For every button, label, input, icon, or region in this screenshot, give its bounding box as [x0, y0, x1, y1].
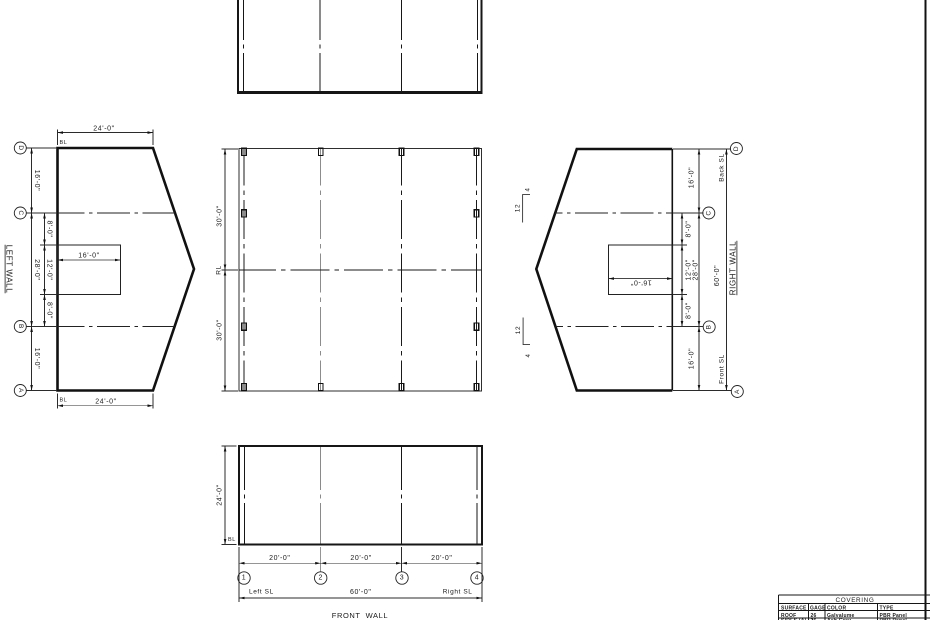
svg-text:FRONT WALL: FRONT WALL: [332, 611, 388, 620]
svg-text:12'-0": 12'-0": [686, 259, 693, 280]
svg-text:D: D: [733, 146, 740, 151]
svg-text:LEFT WALL: LEFT WALL: [5, 245, 14, 294]
svg-text:4: 4: [526, 187, 532, 191]
svg-text:RIGHT WALL: RIGHT WALL: [729, 241, 738, 295]
svg-text:16'-0": 16'-0": [689, 167, 696, 188]
svg-text:A: A: [17, 388, 24, 393]
svg-text:8'-0": 8'-0": [686, 302, 693, 319]
svg-text:16'-0": 16'-0": [689, 348, 696, 369]
svg-text:BL: BL: [228, 537, 236, 543]
svg-text:TYPE: TYPE: [880, 605, 894, 611]
svg-text:24'-0": 24'-0": [95, 399, 116, 406]
svg-text:60'-0": 60'-0": [714, 265, 721, 286]
svg-text:28'-0": 28'-0": [33, 259, 40, 280]
svg-text:GAGE: GAGE: [810, 605, 826, 611]
svg-text:8'-0": 8'-0": [46, 221, 53, 238]
svg-text:C: C: [17, 210, 24, 215]
svg-text:30'-0": 30'-0": [217, 205, 224, 226]
svg-text:BL: BL: [60, 398, 68, 404]
svg-text:16'-0": 16'-0": [33, 348, 40, 369]
svg-text:RL: RL: [216, 265, 223, 275]
svg-text:1: 1: [242, 575, 247, 582]
svg-text:4: 4: [526, 353, 532, 357]
svg-text:16'-0": 16'-0": [78, 253, 99, 260]
svg-text:B: B: [17, 324, 24, 329]
svg-text:4: 4: [475, 575, 480, 582]
svg-text:COVERING: COVERING: [836, 597, 875, 604]
svg-text:24'-0": 24'-0": [93, 126, 114, 133]
svg-text:SURFACE: SURFACE: [781, 605, 807, 611]
svg-text:12'-0": 12'-0": [46, 259, 53, 280]
svg-text:12: 12: [515, 204, 522, 212]
svg-text:16'-0": 16'-0": [33, 170, 40, 191]
svg-text:8'-0": 8'-0": [686, 221, 693, 238]
svg-text:BL: BL: [60, 140, 68, 146]
svg-text:20'-0": 20'-0": [350, 555, 371, 562]
svg-text:Front SL: Front SL: [719, 354, 726, 384]
svg-text:A: A: [734, 389, 741, 394]
svg-text:60'-0": 60'-0": [350, 589, 371, 596]
svg-text:12: 12: [515, 326, 522, 334]
svg-text:C: C: [705, 210, 712, 215]
svg-text:COLOR: COLOR: [827, 605, 846, 611]
svg-text:Back SL: Back SL: [719, 153, 726, 181]
svg-text:20'-0": 20'-0": [431, 555, 452, 562]
svg-text:2: 2: [318, 575, 323, 582]
svg-text:30'-0": 30'-0": [217, 319, 224, 340]
svg-text:16'-0": 16'-0": [630, 279, 651, 286]
svg-text:D: D: [17, 145, 24, 150]
svg-text:28'-0": 28'-0": [693, 259, 700, 280]
svg-text:B: B: [706, 324, 713, 329]
svg-text:3: 3: [400, 575, 405, 582]
svg-text:8'-0": 8'-0": [46, 302, 53, 319]
svg-text:24'-0": 24'-0": [217, 484, 224, 505]
svg-text:Right SL: Right SL: [443, 589, 473, 596]
svg-text:20'-0": 20'-0": [269, 555, 290, 562]
svg-text:Left SL: Left SL: [249, 589, 274, 596]
